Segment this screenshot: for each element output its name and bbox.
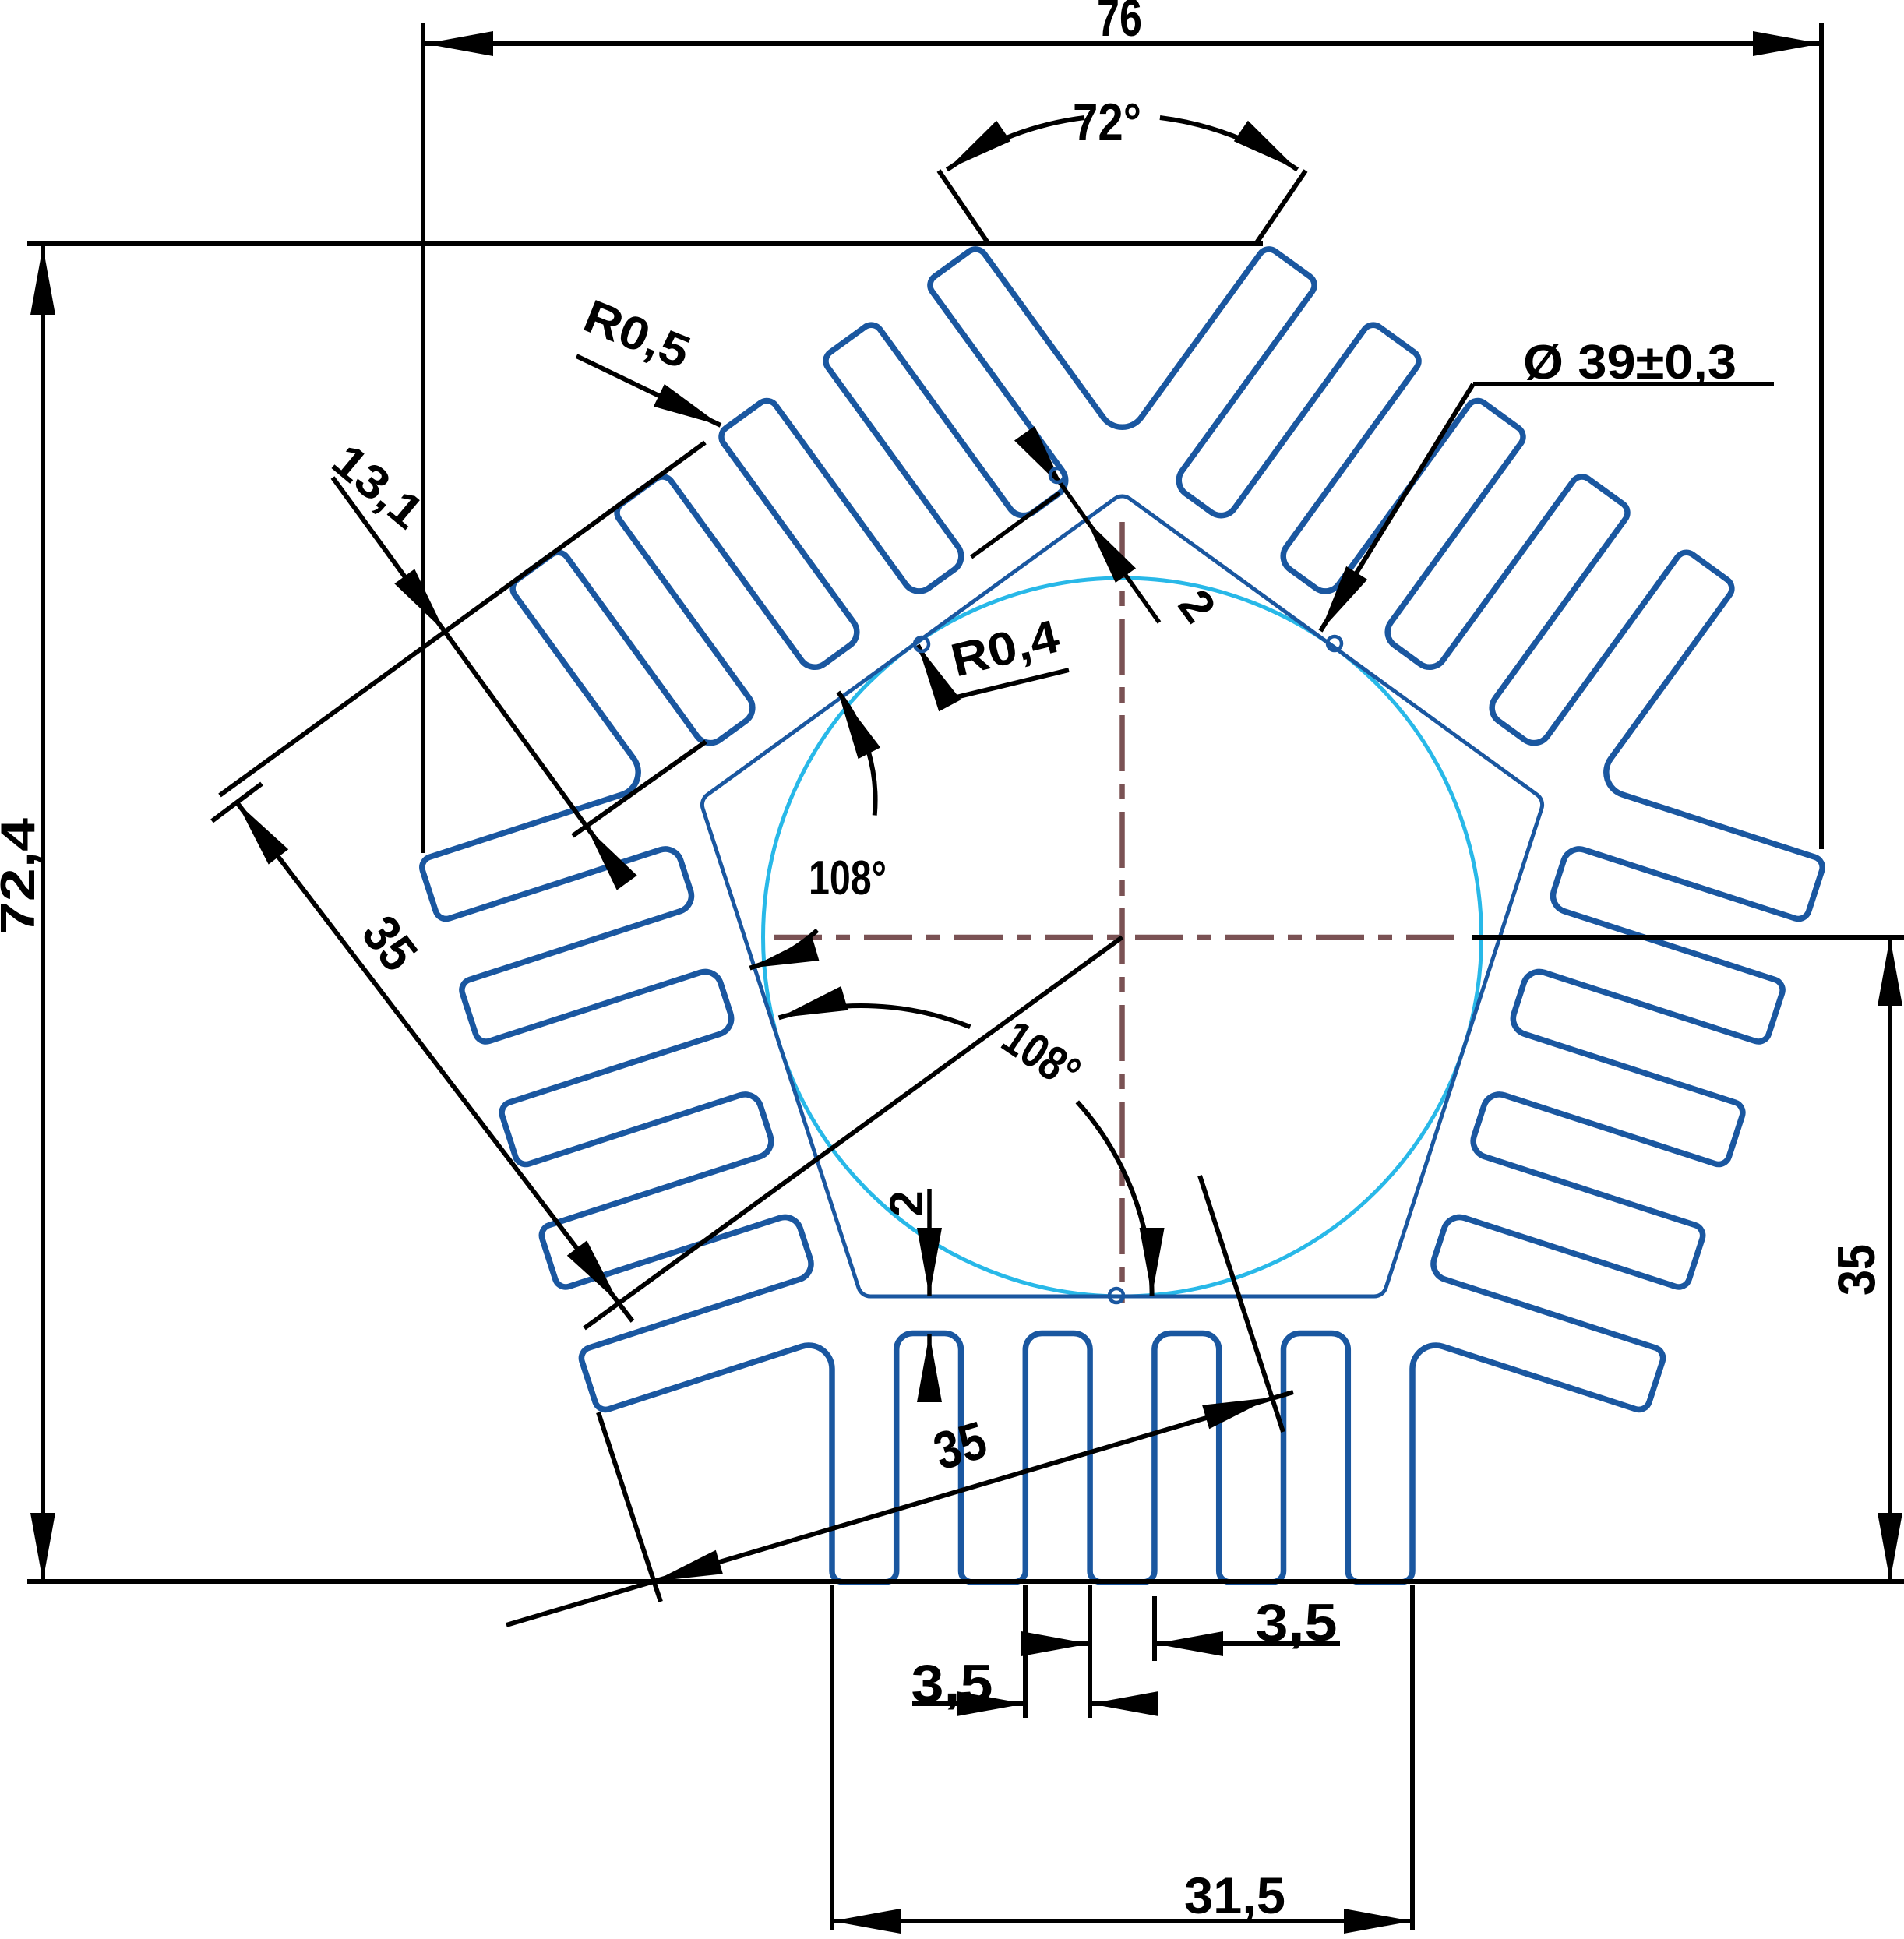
svg-text:31,5: 31,5 [1184, 1867, 1285, 1924]
svg-text:72°: 72° [1073, 93, 1141, 152]
svg-text:76: 76 [1097, 0, 1142, 48]
svg-text:3,5: 3,5 [1256, 1593, 1338, 1652]
svg-text:3,5: 3,5 [911, 1654, 993, 1713]
svg-text:108°: 108° [809, 851, 887, 905]
svg-text:2: 2 [880, 1190, 933, 1216]
svg-text:72,4: 72,4 [0, 817, 45, 935]
svg-text:35: 35 [1827, 1244, 1886, 1296]
svg-text:Ø 39±0,3: Ø 39±0,3 [1523, 336, 1737, 390]
